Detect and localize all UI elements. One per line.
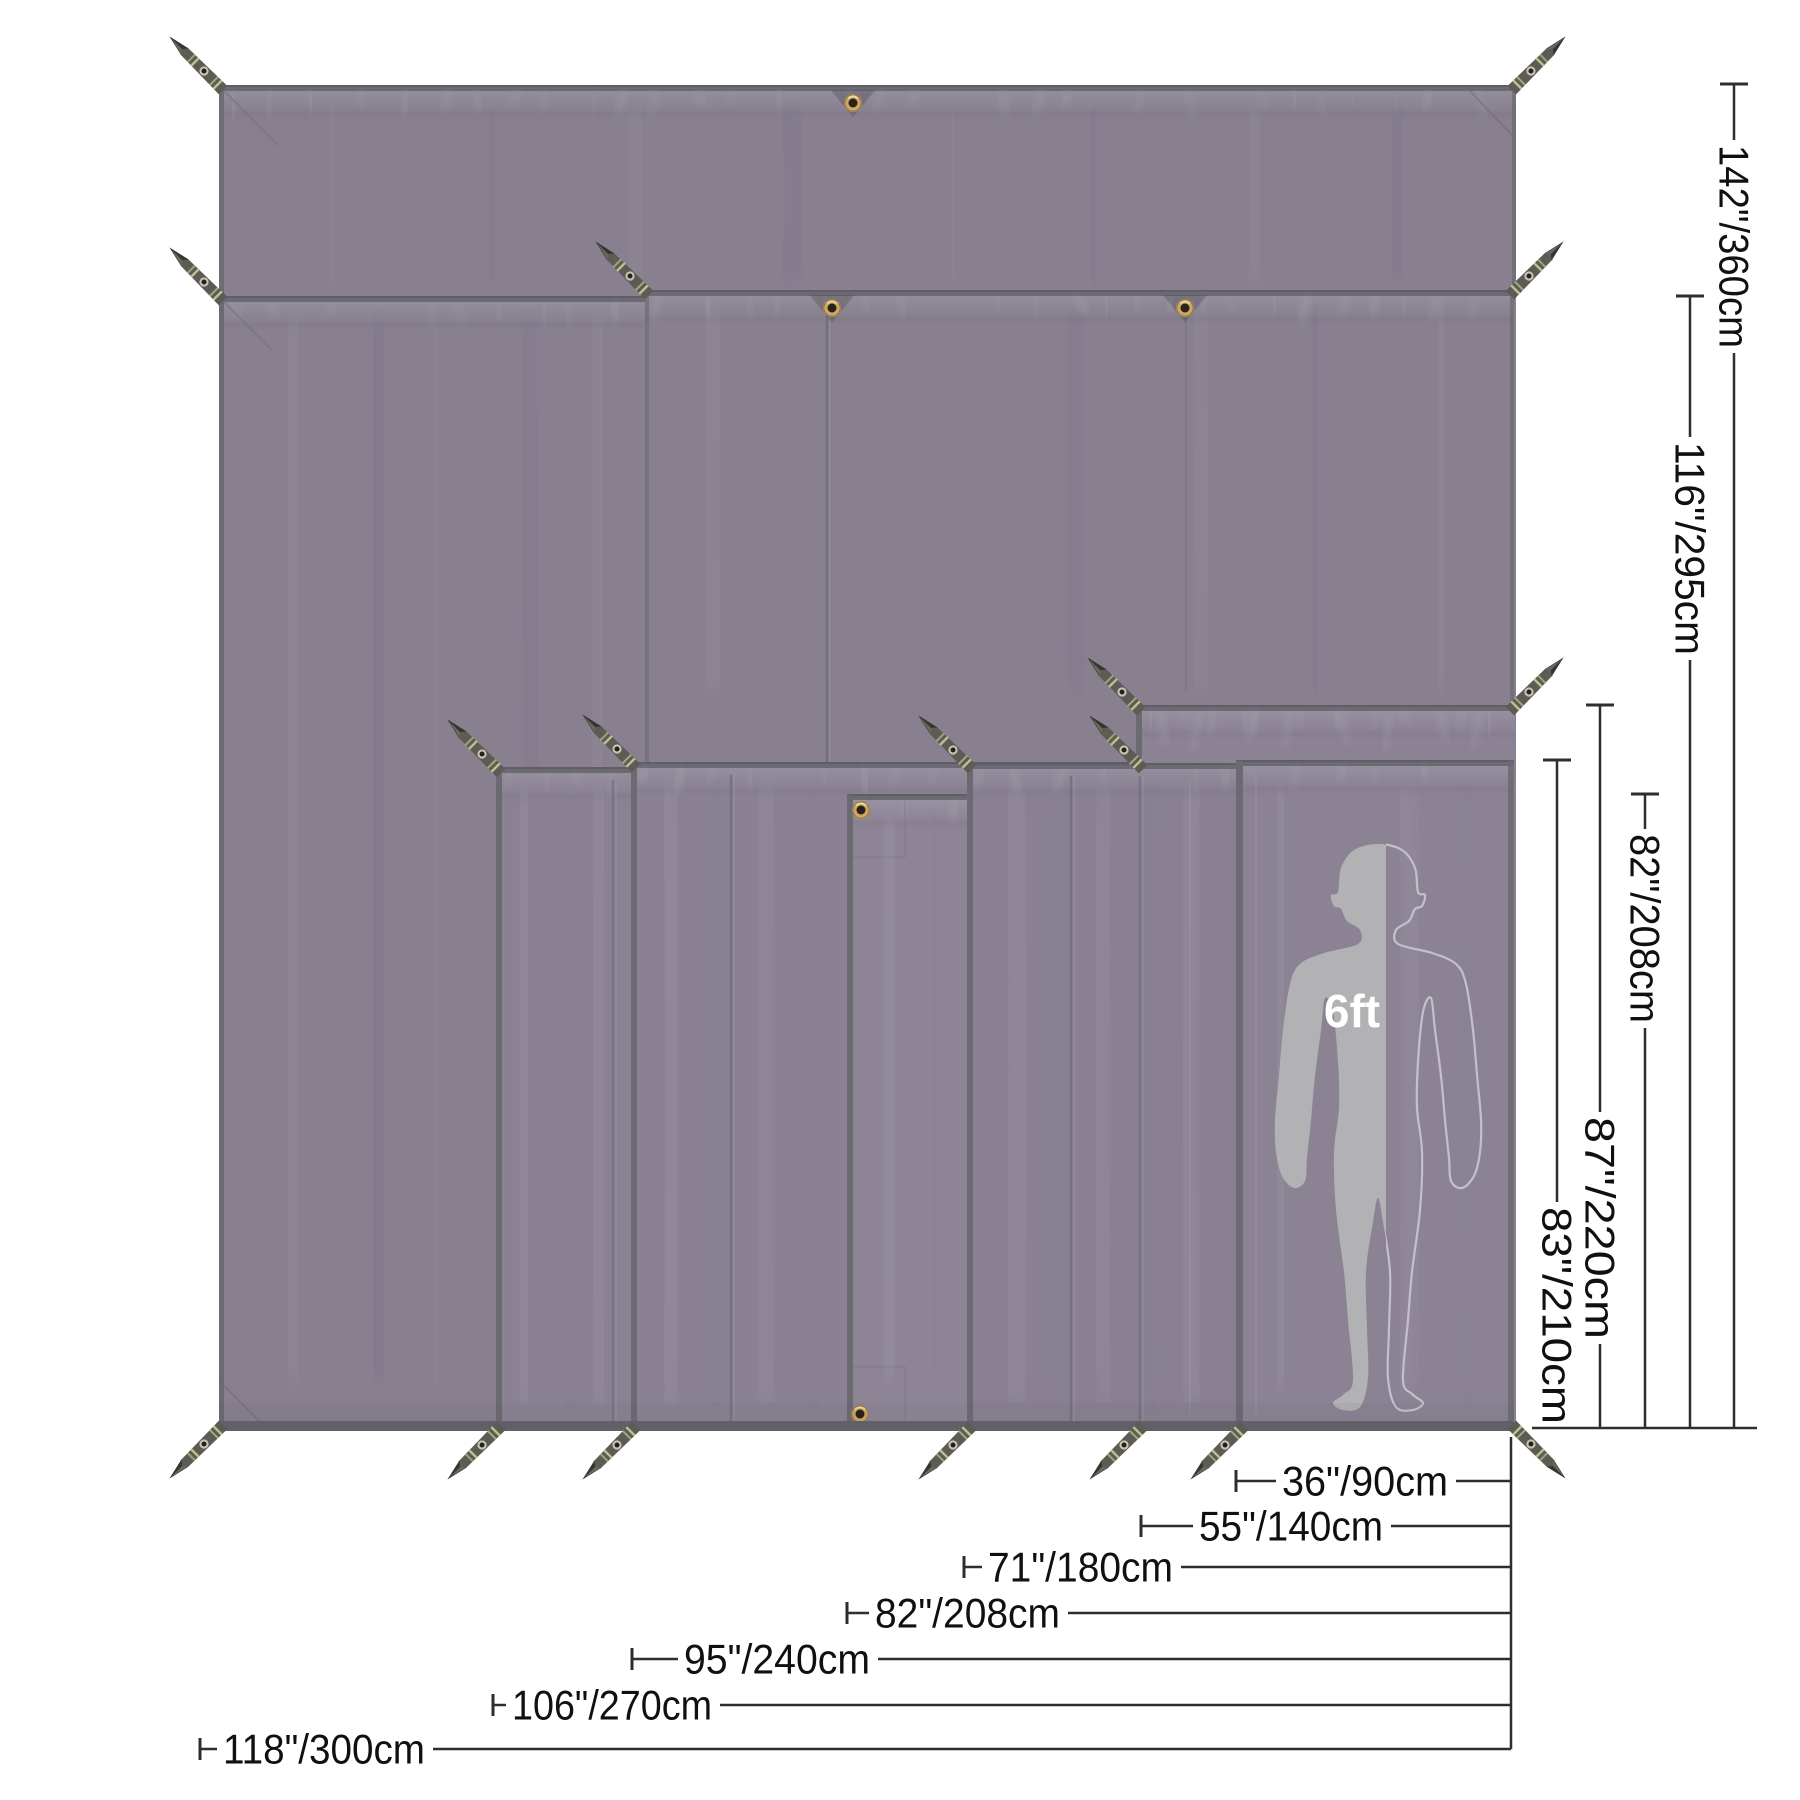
svg-text:55"/140cm: 55"/140cm [1199, 1503, 1383, 1550]
svg-text:6ft: 6ft [1324, 985, 1380, 1037]
svg-text:82"/208cm: 82"/208cm [875, 1590, 1060, 1637]
svg-text:82"/208cm: 82"/208cm [1622, 834, 1669, 1023]
svg-text:87"/220cm: 87"/220cm [1577, 1117, 1624, 1339]
svg-text:142"/360cm: 142"/360cm [1711, 145, 1758, 348]
svg-text:36"/90cm: 36"/90cm [1282, 1458, 1448, 1505]
svg-text:116"/295cm: 116"/295cm [1667, 442, 1714, 655]
svg-text:106"/270cm: 106"/270cm [512, 1682, 712, 1729]
svg-text:71"/180cm: 71"/180cm [988, 1544, 1173, 1591]
svg-text:95"/240cm: 95"/240cm [684, 1636, 870, 1683]
svg-text:118"/300cm: 118"/300cm [223, 1726, 425, 1773]
svg-text:83"/210cm: 83"/210cm [1534, 1207, 1581, 1424]
